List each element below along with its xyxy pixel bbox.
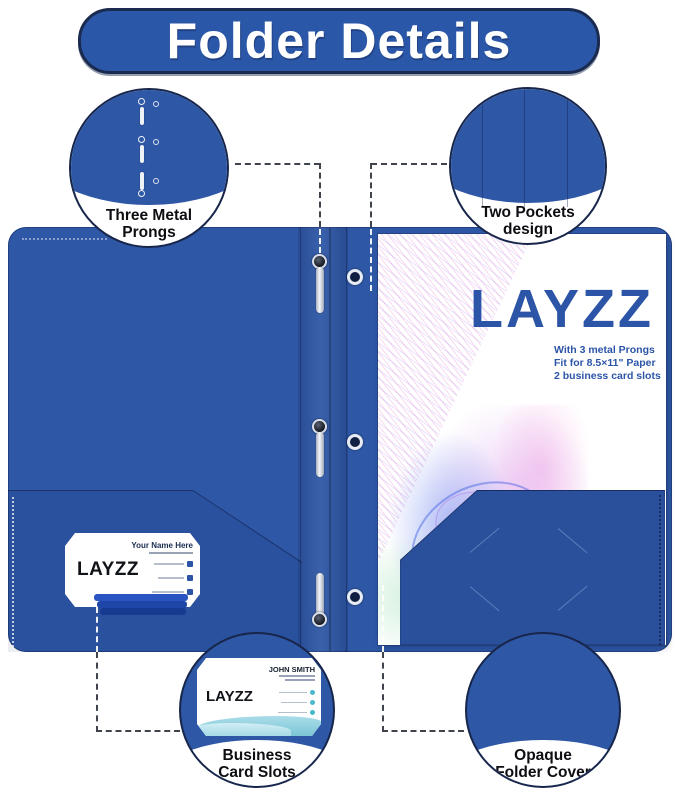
card-brand-logo: LAYZZ <box>206 688 253 705</box>
card-text-bar <box>158 577 184 579</box>
callout-label: Business Card Slots <box>181 747 333 781</box>
label-line: Folder Cover <box>467 764 619 781</box>
callout-card-slots: LAYZZ JOHN SMITH Business Card <box>179 632 335 788</box>
header-banner: Folder Details <box>78 8 600 74</box>
label-line: Prongs <box>71 224 227 241</box>
connector-line <box>319 229 321 253</box>
label-line: Three Metal <box>71 207 227 224</box>
connector-line <box>370 229 372 291</box>
contact-icon <box>310 700 315 705</box>
card-slit <box>558 528 588 553</box>
metal-prong-head <box>312 612 327 627</box>
feature-line: With 3 metal Prongs <box>554 344 661 357</box>
callout-opaque-cover: Opaque Folder Cover <box>465 632 621 788</box>
contact-icon <box>310 690 315 695</box>
card-contact-row <box>281 700 315 705</box>
connector-line <box>382 730 464 732</box>
metal-prong-strip <box>316 432 324 477</box>
card-slit <box>470 528 500 553</box>
insert-feature-list: With 3 metal Prongs Fit for 8.5×11" Pape… <box>554 344 661 383</box>
label-line: Business <box>181 747 333 764</box>
metal-prong-strip <box>140 107 144 125</box>
card-contact-row <box>158 575 193 581</box>
card-brand-logo: LAYZZ <box>77 559 139 581</box>
card-name-label: Your Name Here <box>131 541 193 550</box>
callout-three-prongs: Three Metal Prongs <box>69 88 229 248</box>
card-text-bar <box>281 702 307 704</box>
metal-prong-head <box>138 98 145 105</box>
card-contact-row <box>278 710 315 715</box>
callout-two-pockets: Two Pockets design <box>449 87 607 245</box>
connector-line <box>96 607 98 652</box>
card-slit <box>558 586 588 611</box>
connector-line <box>382 585 384 652</box>
metal-prong-strip <box>140 145 144 163</box>
card-text-bar <box>285 679 315 681</box>
connector-line <box>382 652 384 732</box>
fold-line <box>524 89 525 207</box>
connector-line <box>319 163 321 227</box>
contact-icon <box>187 561 193 567</box>
label-line: design <box>451 221 605 238</box>
card-text-bar <box>279 692 307 694</box>
grommet-ring <box>347 589 363 605</box>
contact-icon <box>310 710 315 715</box>
card-stack <box>97 601 187 608</box>
feature-line: 2 business card slots <box>554 370 661 383</box>
right-pocket-stitch <box>659 495 661 645</box>
card-stack <box>94 594 188 601</box>
product-infographic: Folder Details LAYZZ With 3 metal Prongs… <box>0 0 679 793</box>
feature-line: Fit for 8.5×11" Paper <box>554 357 661 370</box>
card-text-bar <box>152 591 184 593</box>
page-title: Folder Details <box>167 12 512 70</box>
connector-line <box>370 163 372 227</box>
contact-icon <box>187 589 193 595</box>
metal-prong-strip <box>140 172 144 190</box>
connector-line <box>371 163 447 165</box>
left-pocket-stitch <box>12 497 14 647</box>
left-pocket-edge <box>8 490 193 491</box>
metal-prong-strip <box>316 573 324 617</box>
grommet-ring <box>153 178 159 184</box>
card-text-bar <box>154 563 184 565</box>
card-text-bar <box>149 552 193 554</box>
connector-line <box>96 730 180 732</box>
callout-photo-area <box>449 87 607 203</box>
contact-icon <box>187 575 193 581</box>
card-contact-row <box>279 690 315 695</box>
grommet-ring <box>153 101 159 107</box>
label-line: Card Slots <box>181 764 333 781</box>
right-pocket-edge <box>477 490 665 491</box>
label-line: Two Pockets <box>451 204 605 221</box>
card-text-bar <box>278 712 307 714</box>
card-stack <box>100 608 186 615</box>
connector-line <box>235 163 320 165</box>
grommet-ring <box>347 434 363 450</box>
folder-graphic: LAYZZ With 3 metal Prongs Fit for 8.5×11… <box>8 227 672 652</box>
metal-prong-head <box>138 136 145 143</box>
card-text-bar <box>279 675 315 677</box>
fold-line <box>482 89 483 207</box>
grommet-ring <box>153 139 159 145</box>
callout-label: Two Pockets design <box>451 204 605 238</box>
metal-prong-strip <box>316 267 324 313</box>
metal-prong-head <box>138 190 145 197</box>
label-line: Opaque <box>467 747 619 764</box>
grommet-ring <box>347 269 363 285</box>
connector-line <box>96 652 98 732</box>
card-holder-name: JOHN SMITH <box>269 665 315 674</box>
card-contact-row <box>154 561 193 567</box>
callout-label: Three Metal Prongs <box>71 207 227 241</box>
callout-photo-area <box>69 88 229 205</box>
insert-brand-logo: LAYZZ <box>470 278 654 340</box>
fold-line <box>567 89 568 207</box>
callout-label: Opaque Folder Cover <box>467 747 619 781</box>
sample-business-card: LAYZZ JOHN SMITH <box>197 658 321 736</box>
card-wave-decor <box>197 723 291 736</box>
card-slit <box>470 586 500 611</box>
